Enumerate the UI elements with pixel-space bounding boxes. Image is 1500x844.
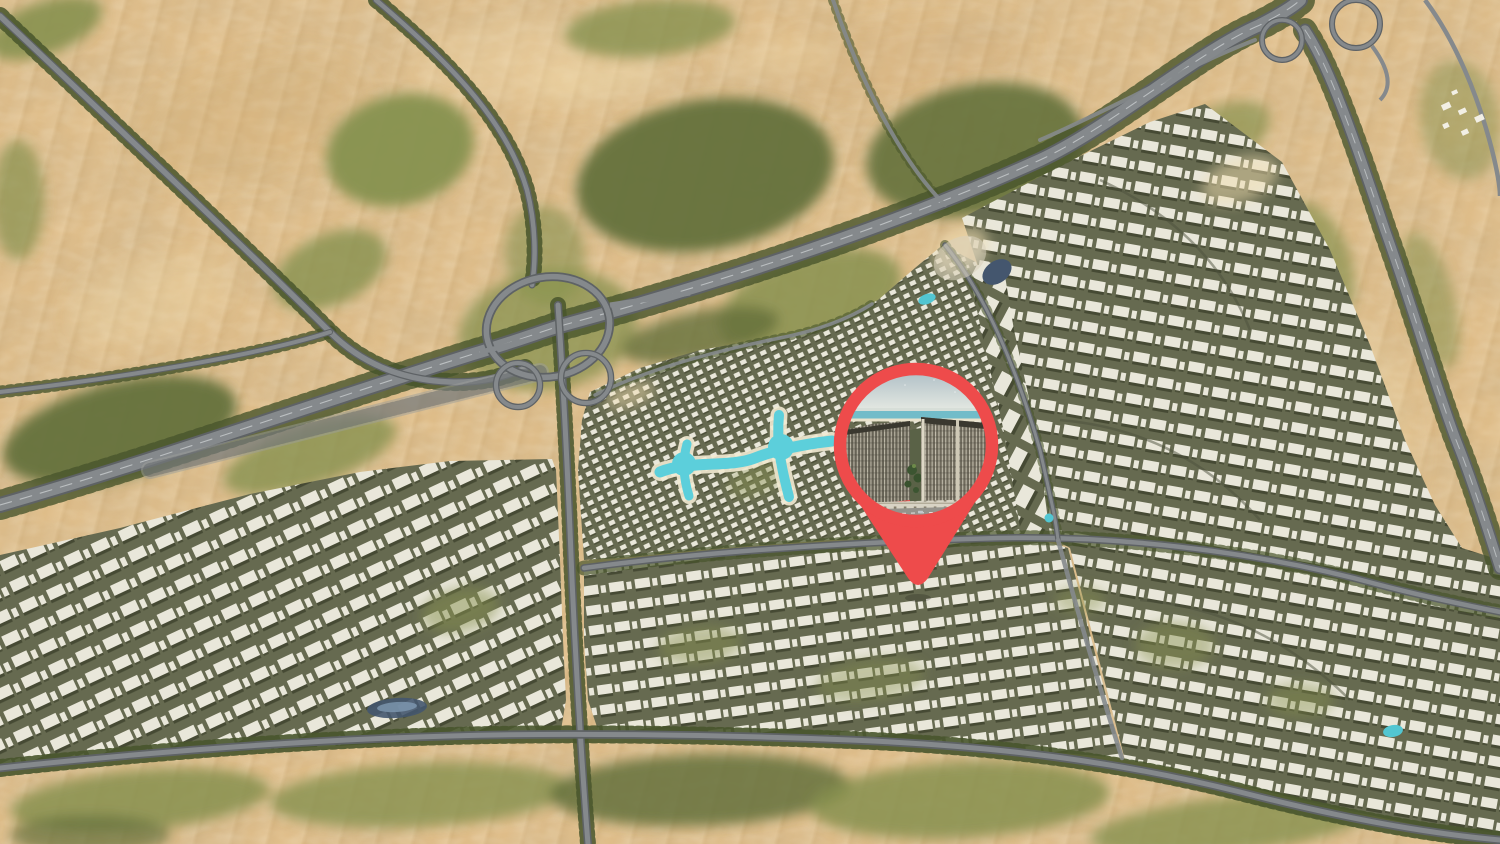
masterplan-map (0, 0, 1500, 844)
pin-shadow (905, 594, 931, 602)
screenshot-stage (0, 0, 1500, 844)
beach-line (845, 419, 987, 422)
sea-band (845, 411, 987, 419)
